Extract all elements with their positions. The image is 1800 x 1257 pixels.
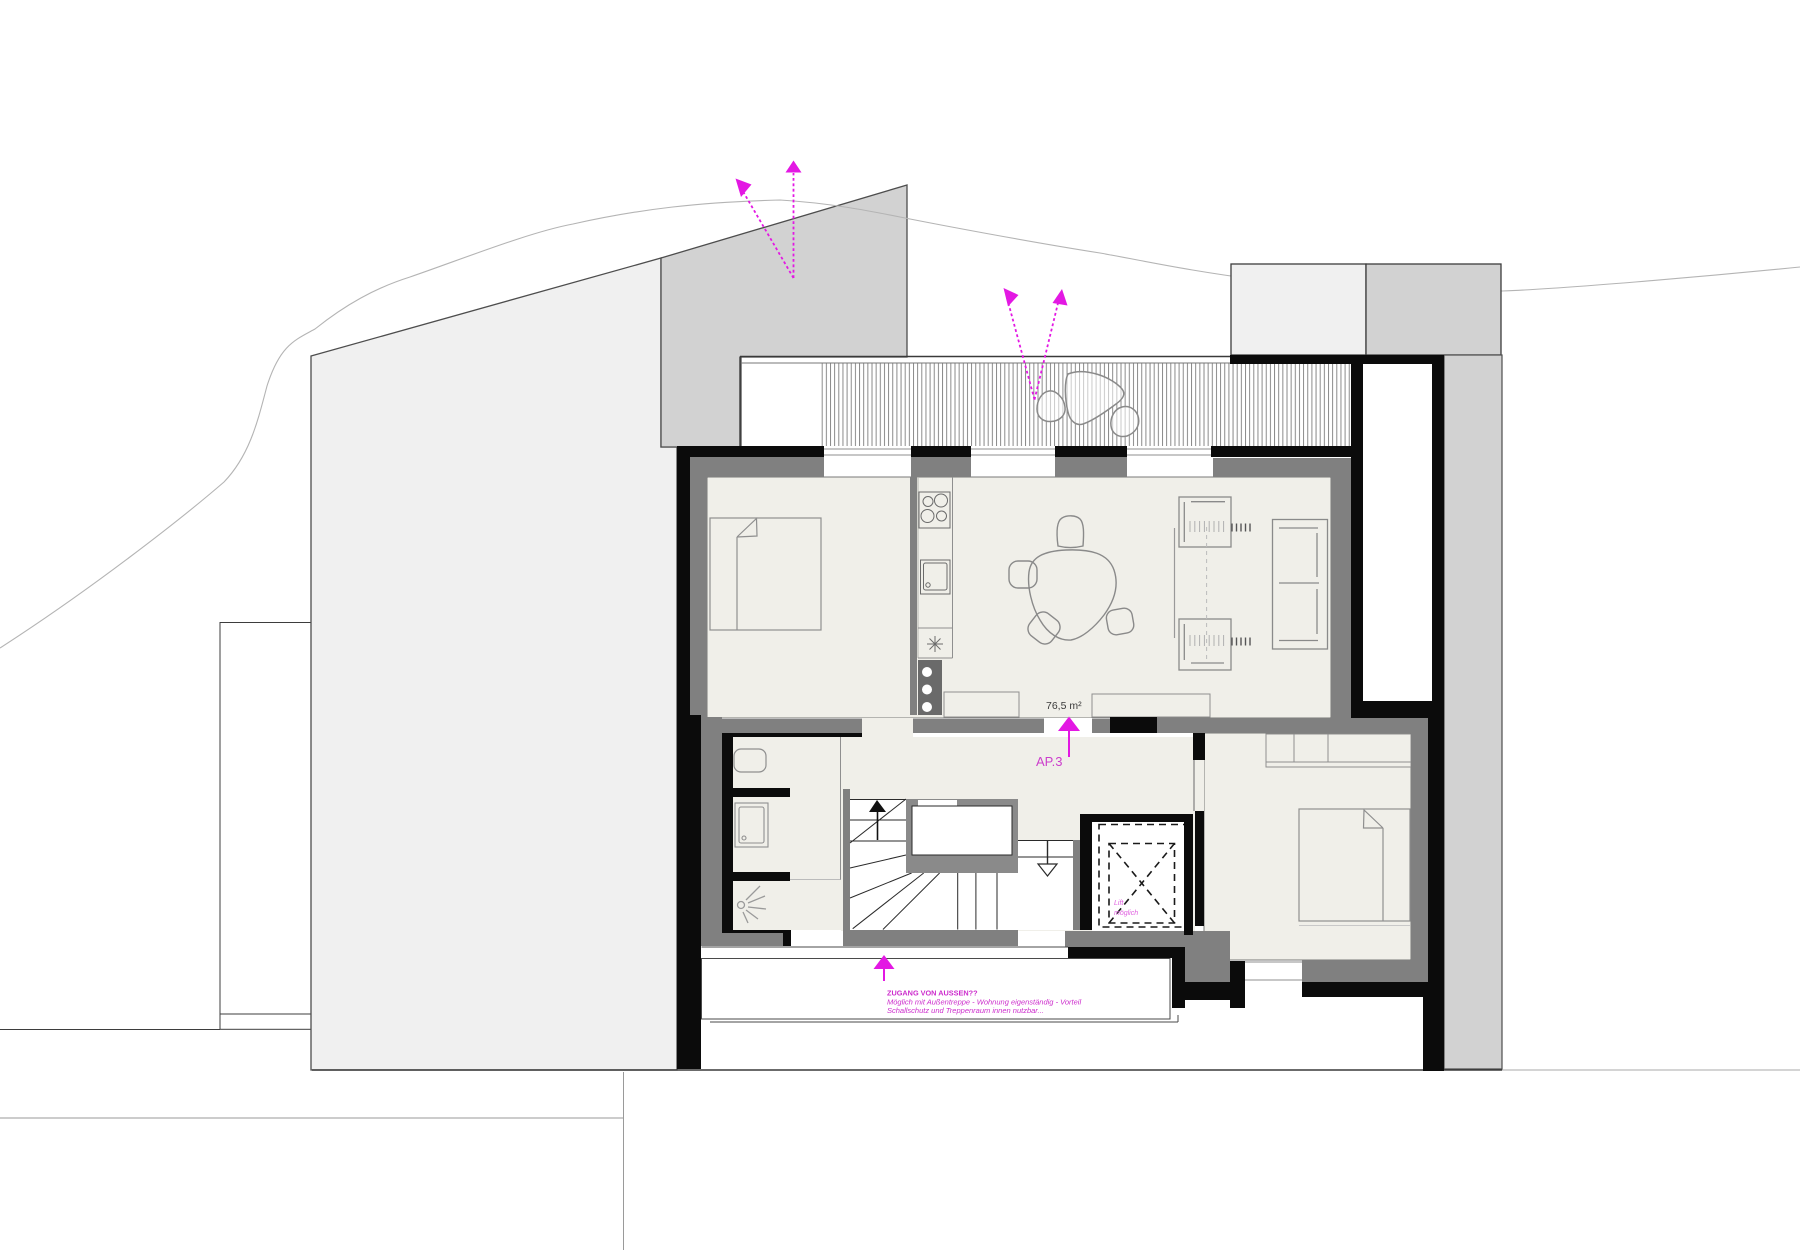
svg-text:Lift: Lift (1114, 900, 1124, 907)
svg-text:AP.3: AP.3 (1036, 754, 1063, 769)
svg-text:76,5 m²: 76,5 m² (1046, 700, 1082, 712)
svg-text:ZUGANG VON AUSSEN??: ZUGANG VON AUSSEN?? (887, 989, 978, 998)
svg-text:möglich: möglich (1114, 910, 1138, 917)
svg-text:Schallschutz und Treppenraum i: Schallschutz und Treppenraum innen nutzb… (887, 1006, 1044, 1015)
